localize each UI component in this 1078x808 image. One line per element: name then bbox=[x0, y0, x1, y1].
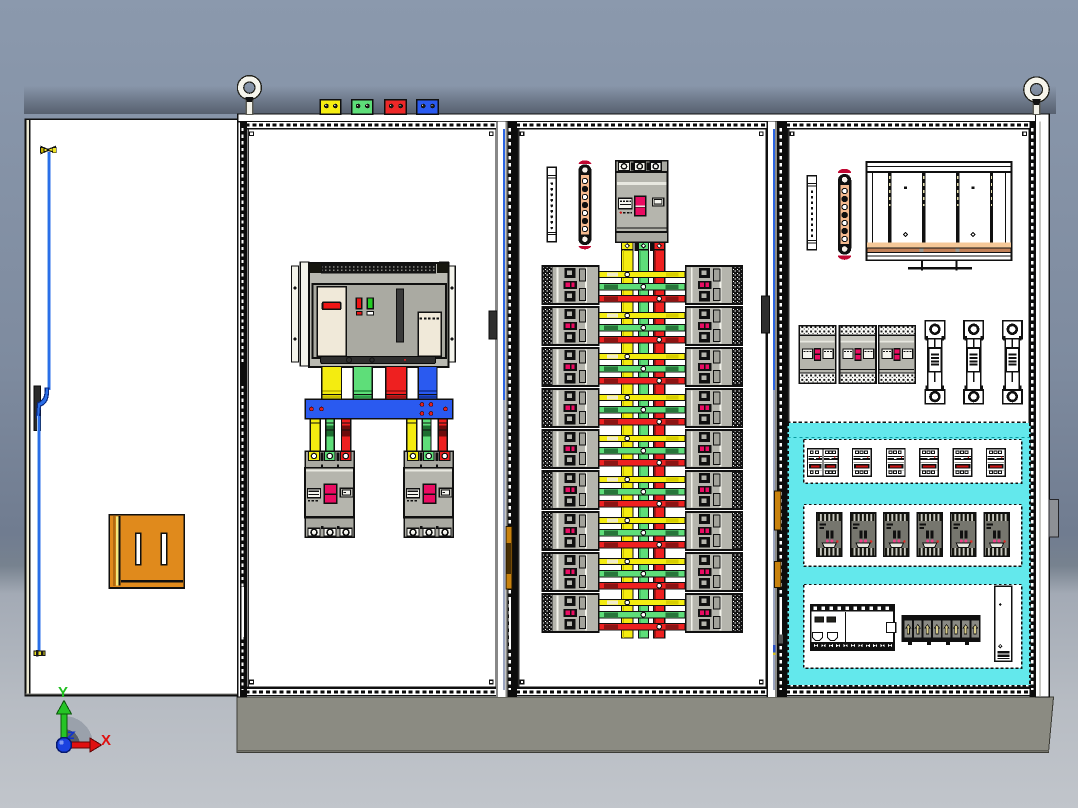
svg-text:X: X bbox=[101, 732, 111, 749]
svg-text:Y: Y bbox=[58, 684, 68, 701]
